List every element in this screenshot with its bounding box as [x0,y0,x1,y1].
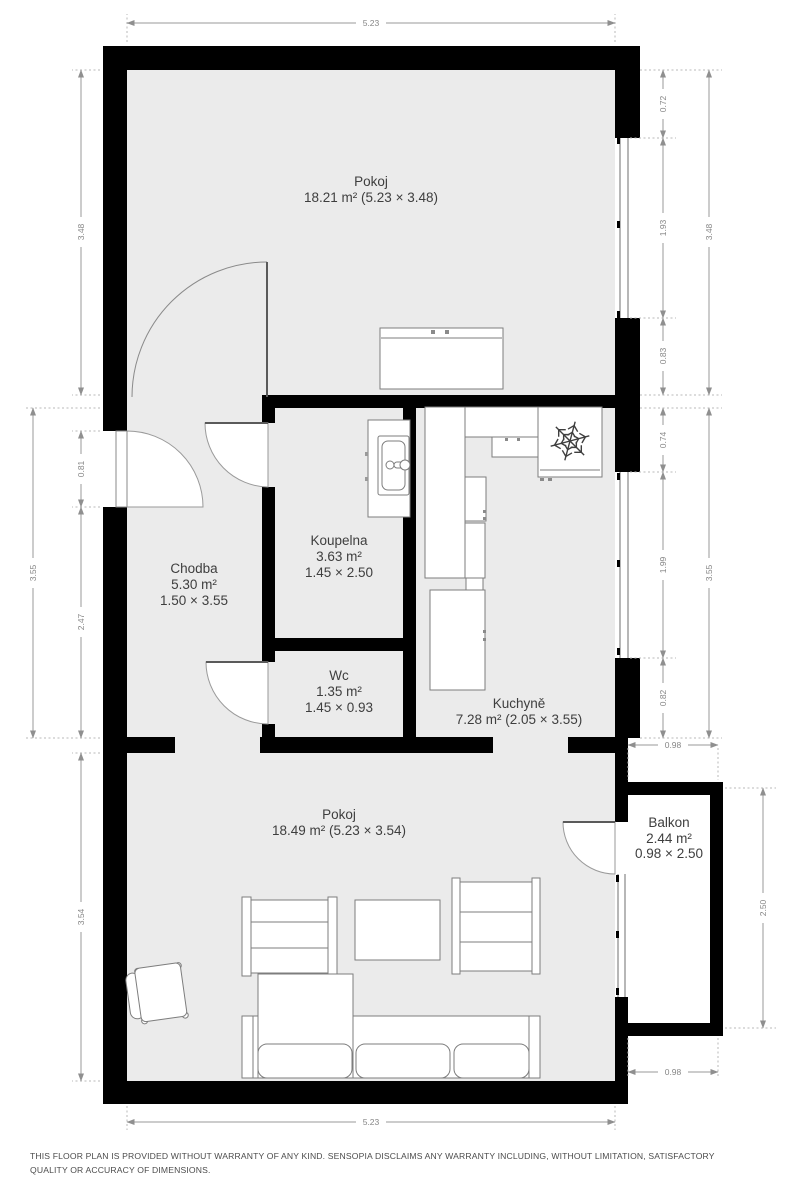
dimension-label: 0.82 [658,689,668,706]
dimension-label: 3.55 [28,564,38,581]
window-bottom-right [615,874,628,997]
room-label-chodba: Chodba 5.30 m² 1.50 × 3.55 [160,561,228,609]
window-top-right [615,137,640,318]
room-name: Chodba [160,561,228,577]
dimension-label: 0.72 [658,95,668,112]
floor-plan-canvas: 5.23 5.23 0.98 0.98 0.72 1.93 0.83 3.48 … [0,0,800,1200]
dimension-label: 1.99 [658,556,668,573]
dimension-label: 2.50 [758,899,768,916]
disclaimer-text: THIS FLOOR PLAN IS PROVIDED WITHOUT WARR… [30,1149,754,1177]
room-label-pokoj-top: Pokoj 18.21 m² (5.23 × 3.48) [304,174,438,206]
dresser-right [452,878,540,974]
freezer [538,407,602,481]
sideboard [380,328,503,389]
dimension-label: 3.48 [76,223,86,240]
balcony-wall-bottom [627,1023,723,1036]
room-label-balkon: Balkon 2.44 m² 0.98 × 2.50 [635,815,703,862]
room-size: 1.50 × 3.55 [160,593,228,609]
dimension-label: 3.54 [76,908,86,925]
dimension-label: 0.98 [665,1067,682,1077]
dimension-label: 1.93 [658,219,668,236]
room-area: 2.44 m² [635,831,703,847]
room-area: 3.63 m² [305,549,373,565]
dimension-label: 0.74 [658,431,668,448]
room-name: Wc [305,668,373,684]
room-size: 1.45 × 0.93 [305,700,373,716]
room-size: 1.45 × 2.50 [305,565,373,581]
dimension-label: 0.81 [76,460,86,477]
room-area: 5.30 m² [160,577,228,593]
dimension-label: 0.98 [665,740,682,750]
balcony-wall-top [627,782,723,795]
room-size: 7.28 m² (2.05 × 3.55) [456,712,582,728]
room-name: Balkon [635,815,703,831]
room-size: 18.21 m² (5.23 × 3.48) [304,190,438,206]
room-name: Pokoj [304,174,438,190]
room-label-wc: Wc 1.35 m² 1.45 × 0.93 [305,668,373,716]
room-area: 1.35 m² [305,684,373,700]
dimension-label: 3.55 [704,564,714,581]
dimension-label: 3.48 [704,223,714,240]
coffee-table [355,900,440,960]
bathroom-sink [365,420,410,517]
dimension-label: 5.23 [363,1117,380,1127]
dimension-label: 2.47 [76,613,86,630]
window-kitchen [615,472,640,658]
room-name: Kuchyně [456,696,582,712]
room-label-pokoj-bottom: Pokoj 18.49 m² (5.23 × 3.54) [272,807,406,839]
dresser-left [242,897,337,976]
room-label-koupelna: Koupelna 3.63 m² 1.45 × 2.50 [305,533,373,581]
room-size: 18.49 m² (5.23 × 3.54) [272,823,406,839]
room-name: Pokoj [272,807,406,823]
room-size: 0.98 × 2.50 [635,846,703,862]
room-name: Koupelna [305,533,373,549]
dimension-label: 5.23 [363,18,380,28]
room-label-kuchyne: Kuchyně 7.28 m² (2.05 × 3.55) [456,696,582,728]
dimension-label: 0.83 [658,347,668,364]
balcony-wall-right [710,782,723,1036]
